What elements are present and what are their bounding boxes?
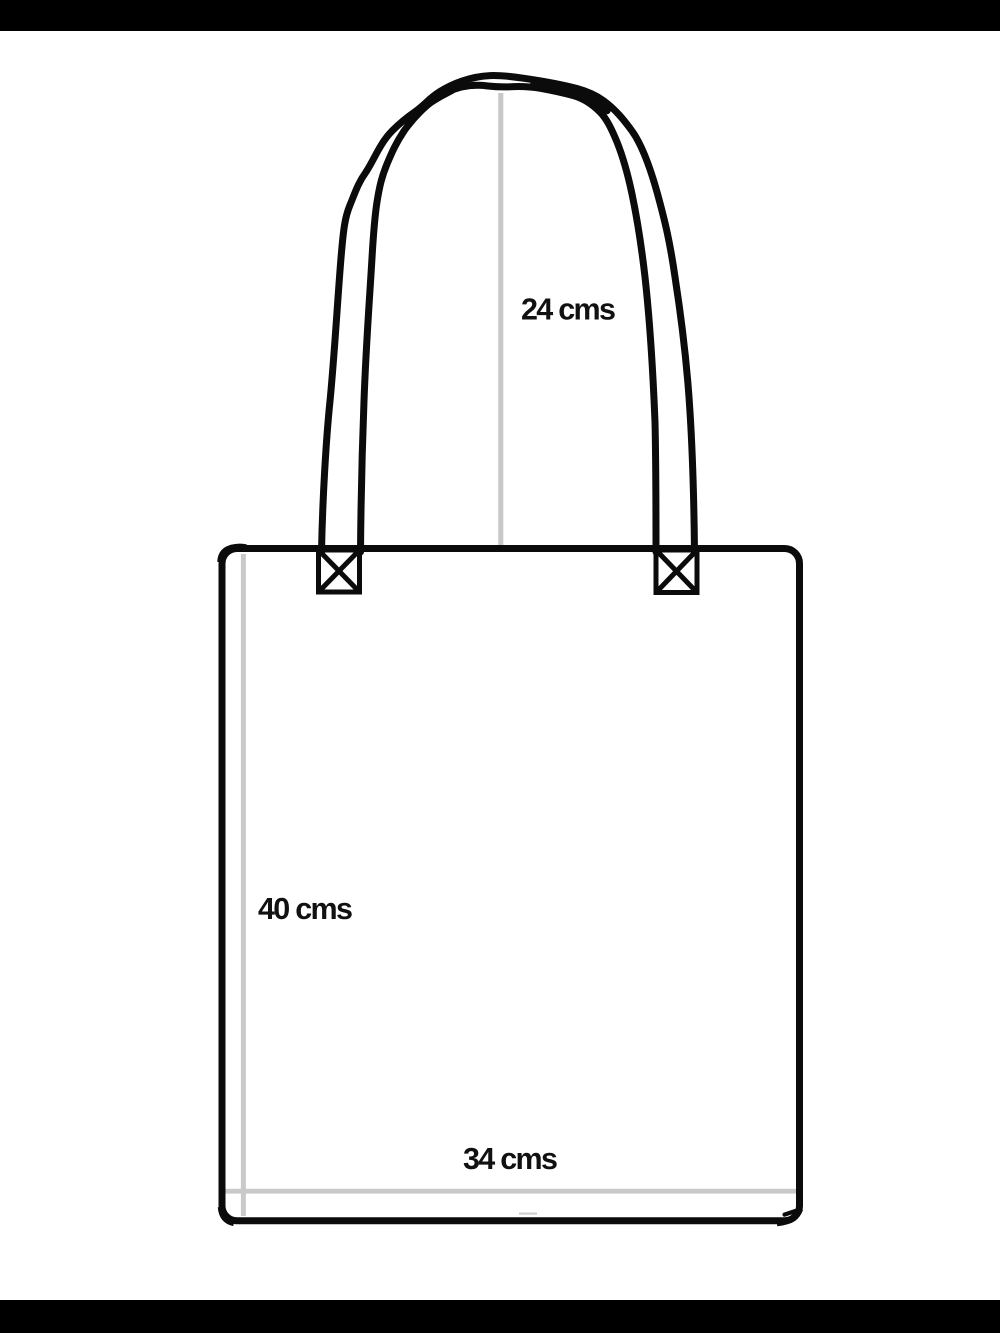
- svg-text:24 cms: 24 cms: [521, 293, 615, 327]
- svg-text:34 cms: 34 cms: [463, 1142, 557, 1176]
- svg-text:40 cms: 40 cms: [258, 892, 352, 926]
